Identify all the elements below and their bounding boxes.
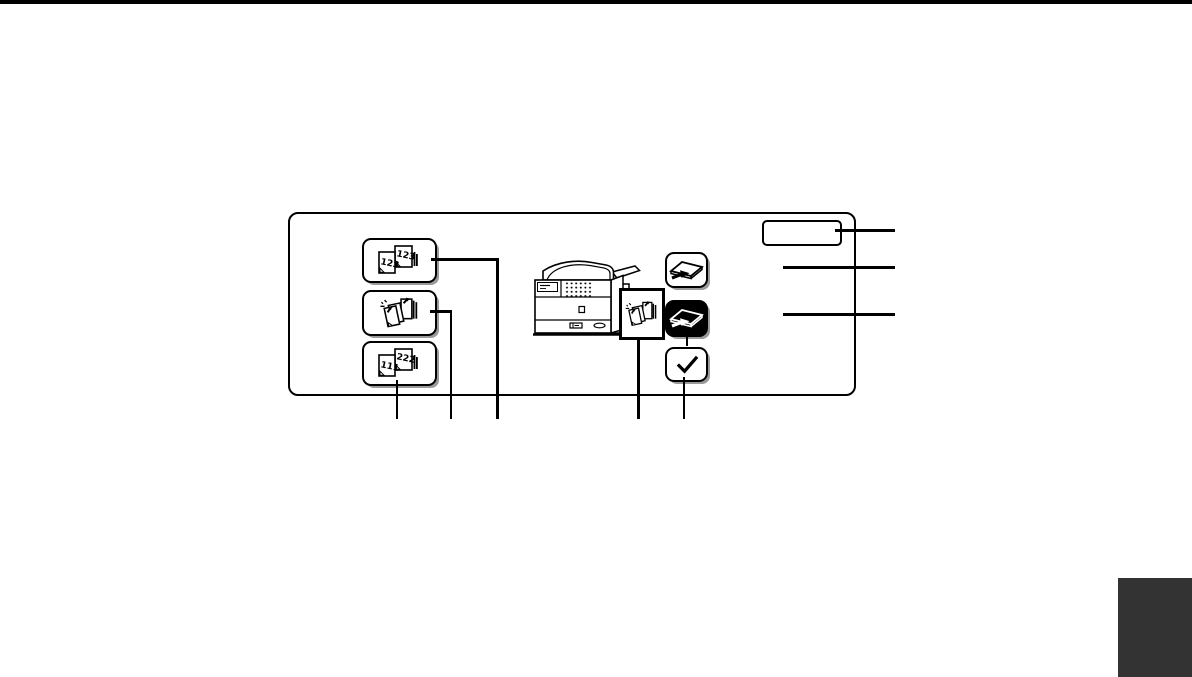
message-display-box [762,220,842,246]
page-top-bar [0,0,1192,4]
staple-sort-icon [378,296,422,330]
staple-sort-key[interactable] [362,290,437,336]
offset-tray-icon-inverted [669,307,704,330]
manual-page: 123 123 222 111 [0,0,1192,677]
group-key[interactable]: 222 111 [362,341,437,386]
ok-check-key[interactable] [665,347,708,382]
offset-key[interactable] [665,252,708,288]
offset-tray-icon [669,259,704,282]
leader-sort-horizontal [431,258,498,261]
staple-sort-icon [624,295,660,333]
connector-offset-to-check [686,335,689,346]
leader-staple-vertical [450,310,453,419]
leader-sort-vertical [496,258,499,419]
finisher-mode-callout [619,288,665,340]
leader-offset-selected-horizontal [783,313,895,316]
leader-offset-horizontal [783,266,895,269]
check-icon [670,352,703,377]
sort-pages-icon: 123 123 [375,244,425,277]
leader-labelbox-horizontal [835,229,895,232]
leader-group-vertical [396,380,399,419]
leader-check-vertical [683,377,686,419]
sort-key[interactable]: 123 123 [362,238,437,283]
page-corner-tab [1118,578,1192,677]
group-pages-icon: 222 111 [375,347,425,380]
offset-key-selected[interactable] [665,300,708,337]
